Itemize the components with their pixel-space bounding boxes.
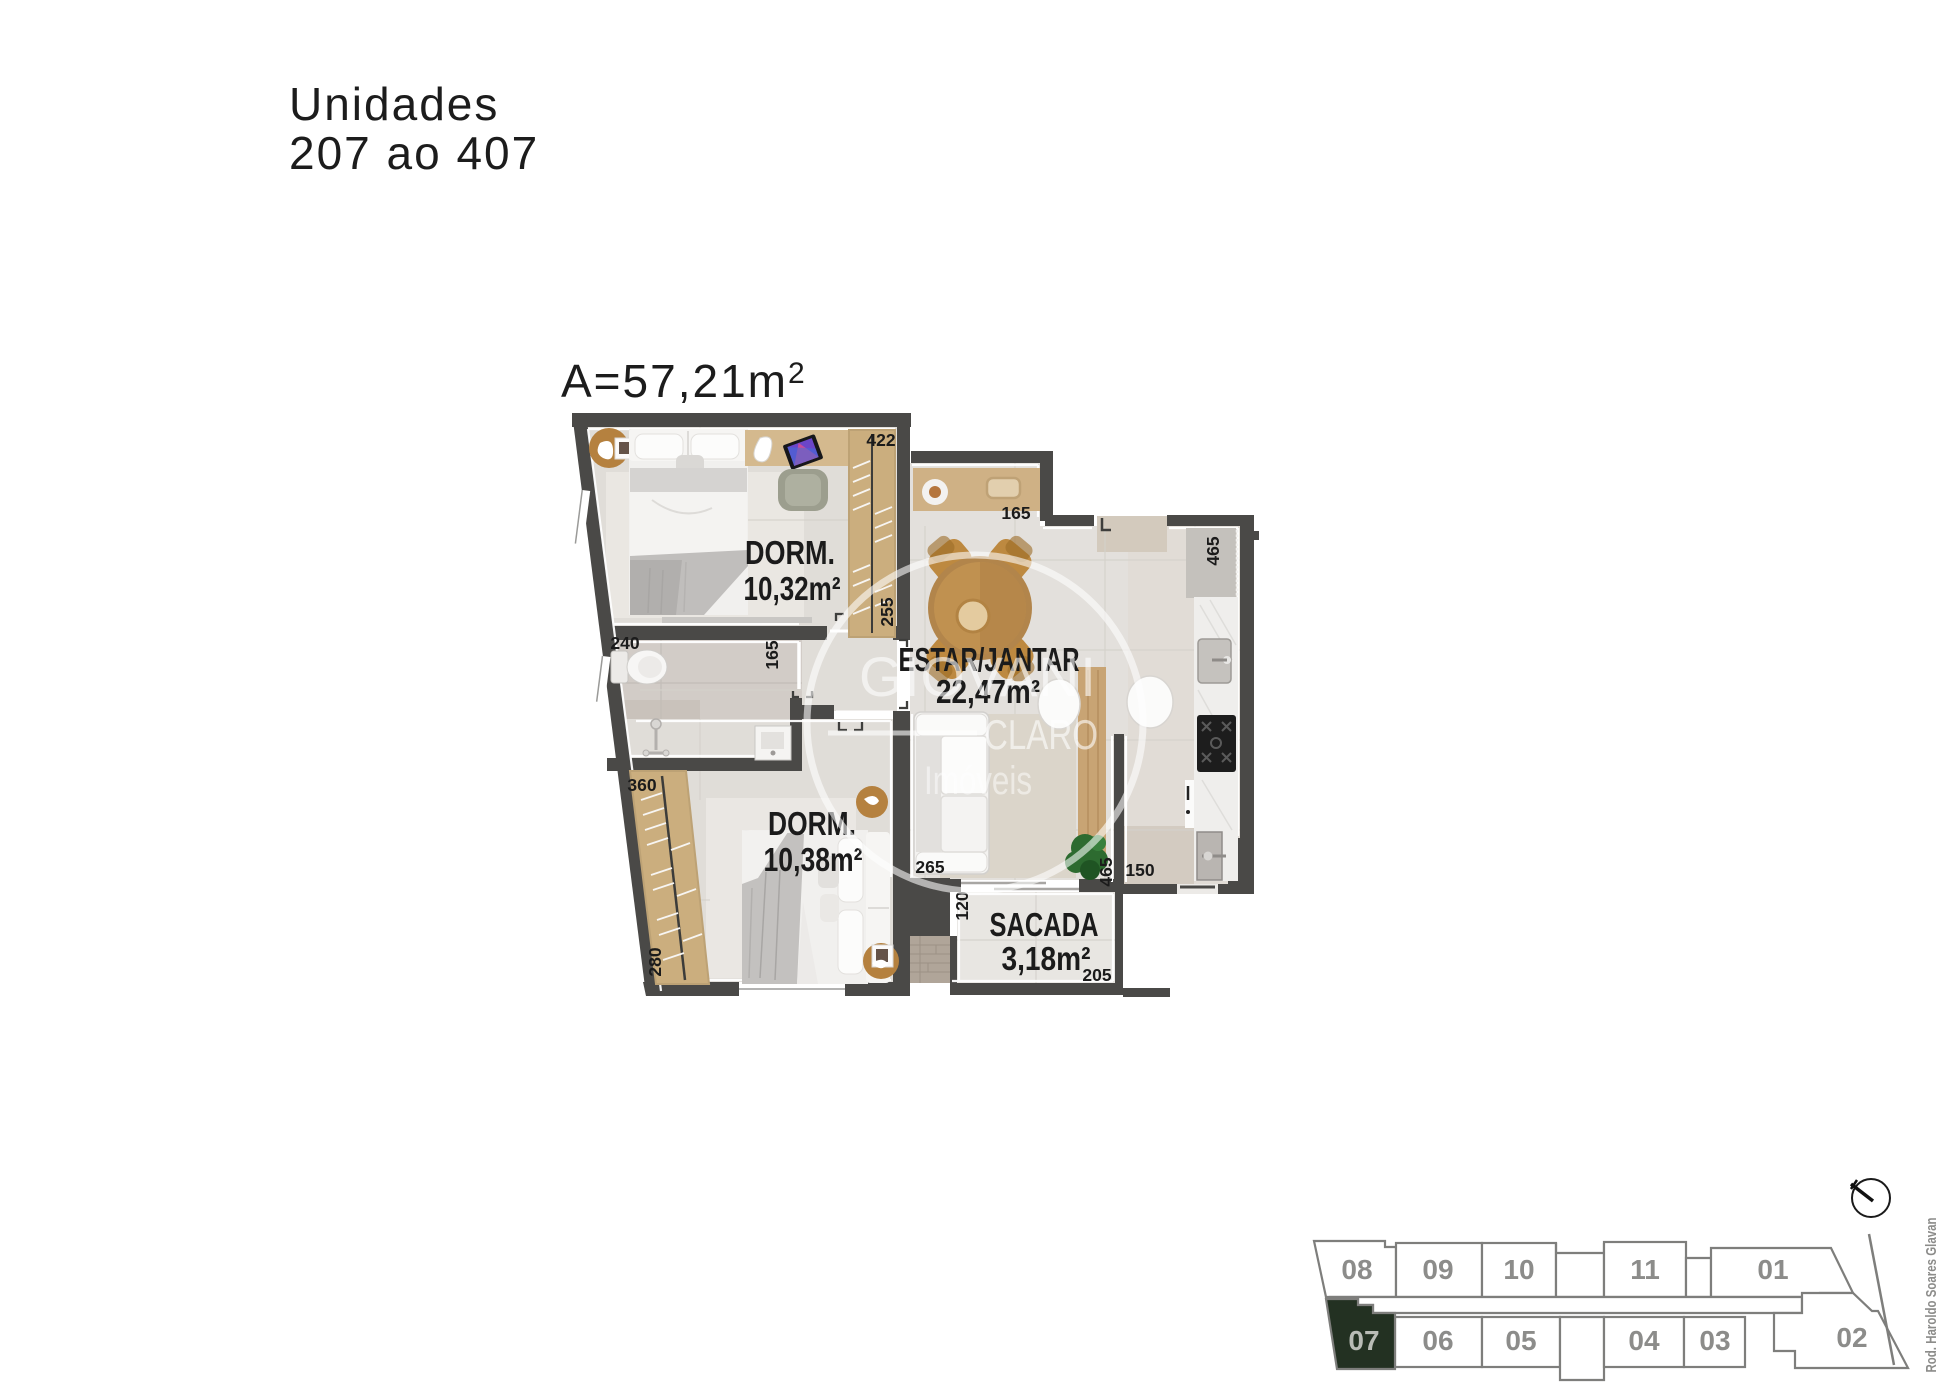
- svg-text:Imóveis: Imóveis: [924, 759, 1032, 803]
- svg-text:10,38m²: 10,38m²: [764, 841, 863, 878]
- svg-text:255: 255: [877, 597, 897, 626]
- svg-text:Rod. Haroldo Soares Glavan: Rod. Haroldo Soares Glavan: [1924, 1218, 1940, 1373]
- svg-text:04: 04: [1628, 1325, 1660, 1356]
- svg-text:CLARO: CLARO: [984, 711, 1098, 758]
- svg-text:GIOVANI: GIOVANI: [859, 645, 1097, 708]
- svg-text:422: 422: [866, 430, 895, 450]
- svg-text:07: 07: [1348, 1325, 1379, 1356]
- svg-text:08: 08: [1341, 1254, 1372, 1285]
- svg-text:360: 360: [627, 775, 656, 795]
- svg-text:10: 10: [1503, 1254, 1534, 1285]
- svg-text:205: 205: [1082, 965, 1111, 985]
- svg-text:A=57,21m2: A=57,21m2: [561, 355, 807, 407]
- svg-text:06: 06: [1422, 1325, 1453, 1356]
- svg-text:03: 03: [1699, 1325, 1730, 1356]
- svg-text:465: 465: [1096, 857, 1116, 886]
- svg-text:Unidades: Unidades: [289, 78, 499, 130]
- svg-text:3,18m²: 3,18m²: [1002, 940, 1091, 977]
- svg-text:10,32m²: 10,32m²: [744, 570, 841, 607]
- svg-text:09: 09: [1422, 1254, 1453, 1285]
- svg-text:01: 01: [1757, 1254, 1788, 1285]
- svg-text:02: 02: [1836, 1322, 1867, 1353]
- svg-text:207 ao 407: 207 ao 407: [289, 127, 539, 179]
- svg-text:120: 120: [952, 891, 972, 920]
- svg-text:240: 240: [610, 633, 639, 653]
- svg-text:SACADA: SACADA: [990, 906, 1099, 943]
- svg-text:265: 265: [915, 857, 944, 877]
- svg-text:05: 05: [1505, 1325, 1536, 1356]
- svg-text:165: 165: [762, 640, 782, 669]
- svg-text:150: 150: [1125, 860, 1154, 880]
- svg-text:280: 280: [645, 947, 665, 976]
- svg-text:DORM.: DORM.: [745, 534, 835, 571]
- svg-text:11: 11: [1630, 1254, 1660, 1285]
- svg-text:165: 165: [1001, 503, 1030, 523]
- svg-text:465: 465: [1203, 536, 1223, 565]
